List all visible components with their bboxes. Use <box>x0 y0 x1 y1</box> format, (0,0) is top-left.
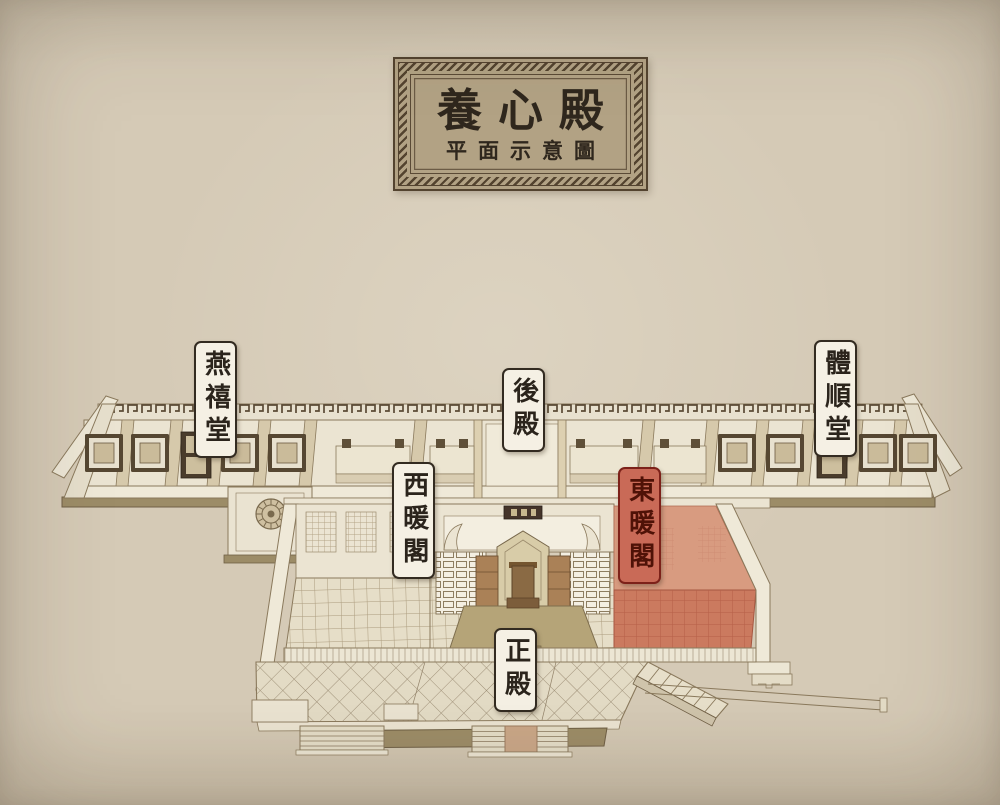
kang-object <box>691 439 700 448</box>
label-zhengdian: 正殿 <box>494 628 537 712</box>
column <box>474 420 482 502</box>
kang-platform-front <box>430 474 474 483</box>
lattice-window <box>306 512 336 552</box>
kang-object <box>660 439 669 448</box>
throne <box>512 566 534 600</box>
east-base-molding <box>752 674 792 685</box>
kang-object <box>623 439 632 448</box>
rear-walkway <box>74 486 932 498</box>
column <box>558 420 566 502</box>
balustrade-end-post <box>880 698 887 712</box>
kang-object <box>395 439 404 448</box>
east-lattice-window <box>698 526 726 562</box>
mid-landing <box>384 704 418 720</box>
throne-plaque-glyph <box>531 509 536 516</box>
decorative-panel-center <box>775 443 795 463</box>
kang-platform <box>654 446 706 474</box>
terrace-deck-paving <box>256 662 648 722</box>
page-subtitle: 平面示意圖 <box>435 140 606 161</box>
throne-plaque-glyph <box>511 509 517 516</box>
decorative-panel-center <box>277 443 297 463</box>
kang-object <box>436 439 445 448</box>
kang-platform <box>430 446 474 474</box>
left-landing <box>252 700 308 722</box>
page-title: 養心殿 <box>421 88 620 133</box>
center-stairs-base <box>468 752 572 757</box>
label-dongnuange-highlighted: 東暖閣 <box>618 467 661 584</box>
left-stairs-base <box>296 750 388 755</box>
label-tishuntang: 體順堂 <box>814 340 857 457</box>
kang-object <box>459 439 468 448</box>
wood-shelf <box>476 556 498 606</box>
label-yanxitang: 燕禧堂 <box>194 341 237 458</box>
decorative-panel-center <box>94 443 114 463</box>
throne-base <box>507 598 539 608</box>
rosette-hub <box>268 511 275 518</box>
wood-shelf <box>548 556 570 606</box>
left-stairs <box>300 726 384 750</box>
kang-object <box>342 439 351 448</box>
decorative-panel-center <box>140 443 160 463</box>
label-xinuange: 西暖閣 <box>392 462 435 579</box>
decorative-panel-center <box>868 443 888 463</box>
kang-platform-front <box>654 474 706 483</box>
door-leaf <box>186 457 206 474</box>
lattice-window <box>346 512 376 552</box>
plaque-panel: 養心殿 平面示意圖 <box>410 74 631 174</box>
kang-object <box>576 439 585 448</box>
decorative-panel-center <box>727 443 747 463</box>
label-houdian: 後殿 <box>502 368 545 452</box>
decorative-panel-center <box>908 443 928 463</box>
door-leaf <box>822 457 842 474</box>
diagram-page: 養心殿 平面示意圖 燕禧堂 後殿 體順堂 西暖閣 東暖閣 正殿 <box>0 0 1000 805</box>
center-ramp-slab <box>505 726 537 752</box>
east-base-molding <box>748 662 790 674</box>
title-plaque: 養心殿 平面示意圖 <box>393 57 648 191</box>
throne-plaque-glyph <box>521 509 527 516</box>
